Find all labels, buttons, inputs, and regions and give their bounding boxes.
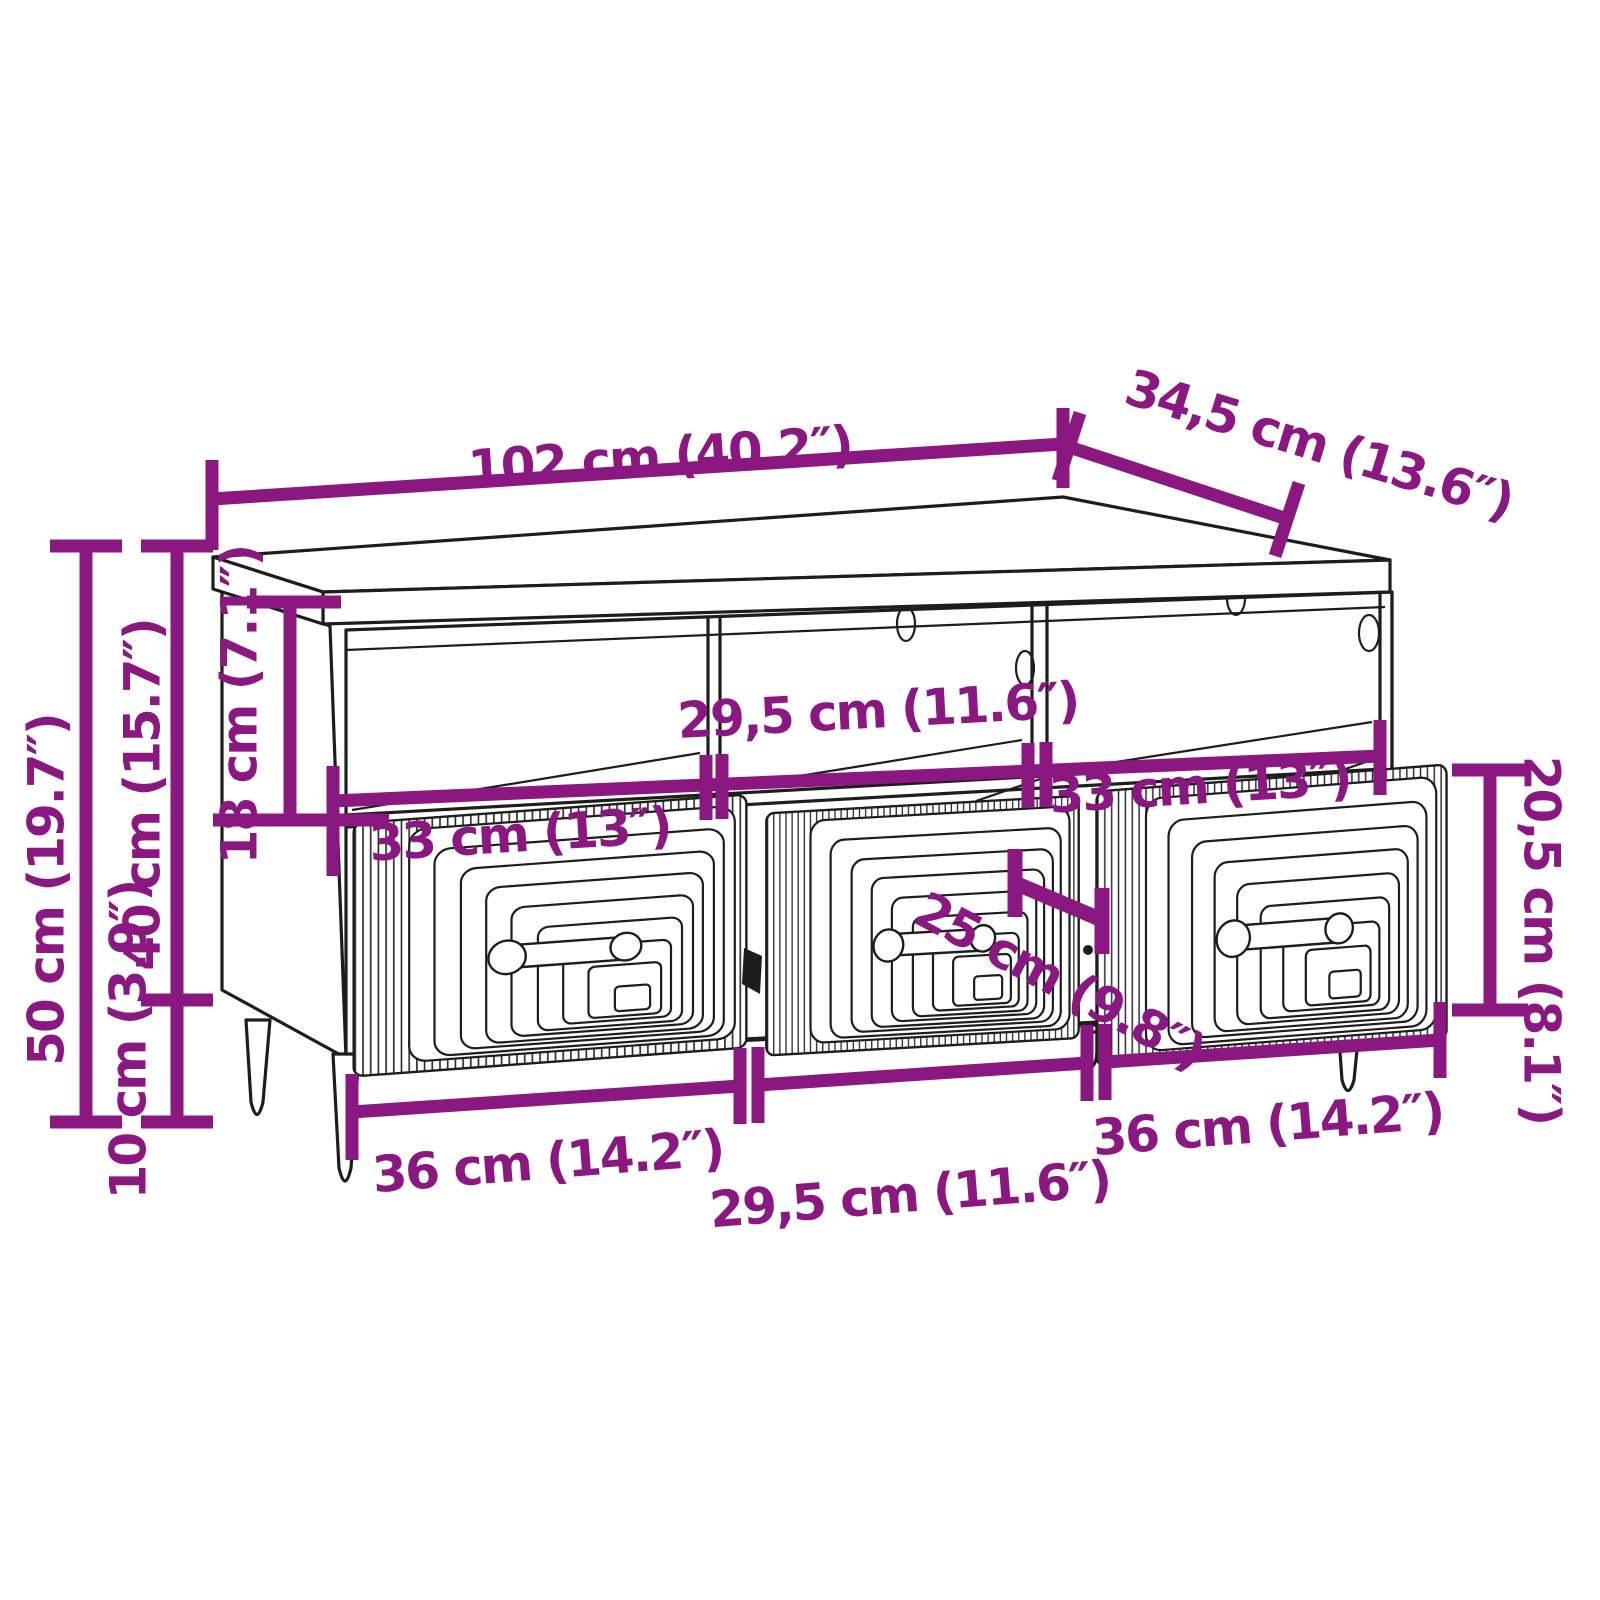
- drawer-lock-dot: [1083, 945, 1093, 955]
- furniture-dimension-diagram: 102 cm (40.2″) 34,5 cm (13.6″) 50 cm (19…: [0, 0, 1600, 1600]
- diagram-canvas: 102 cm (40.2″) 34,5 cm (13.6″) 50 cm (19…: [0, 0, 1600, 1600]
- dim-label-depth-top: 34,5 cm (13.6″): [1119, 358, 1520, 531]
- dim-label-width-top: 102 cm (40.2″): [466, 415, 853, 498]
- leg-back-left: [246, 1020, 270, 1115]
- dim-label-drawer-width-bottom-right: 36 cm (14.2″): [1090, 1082, 1445, 1167]
- dim-label-drawer-width-bottom-left: 36 cm (14.2″): [370, 1119, 725, 1204]
- dim-label-drawer-front-height: 20,5 cm (8.1″): [1513, 756, 1571, 1125]
- dim-label-height-legs: 10 cm (3.9″): [100, 881, 158, 1200]
- dim-label-compartment-width-bottom: 29,5 cm (11.6″): [707, 1150, 1112, 1239]
- dim-label-compartment-height: 18 cm (7.1″): [211, 546, 269, 865]
- dim-label-height-total: 50 cm (19.7″): [18, 714, 76, 1066]
